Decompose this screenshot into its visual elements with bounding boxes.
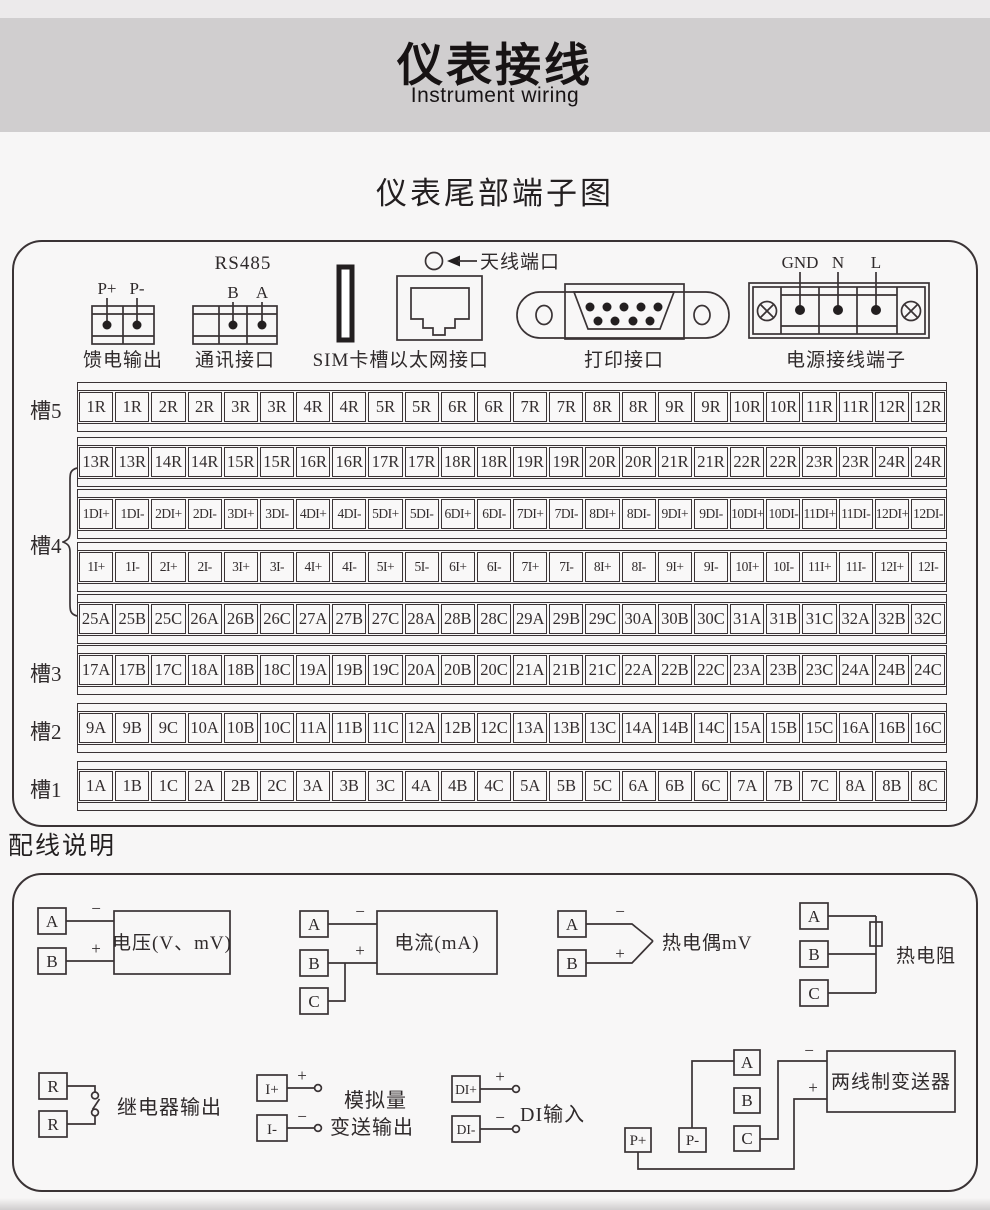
terminal-cell: 14R [151,447,185,477]
terminal-cell: 7R [549,392,583,422]
printer-port-label: 打印接口 [584,349,664,371]
terminal-cell: 13R [115,447,149,477]
terminal-cell: 5C [585,771,619,801]
feed-output-label: 馈电输出 [83,349,163,371]
terminal-cell: 21R [694,447,728,477]
terminal-cell: 12A [405,713,439,743]
terminal-cell: 17A [79,655,113,685]
terminal-cell: 10C [260,713,294,743]
terminal-cell: 18R [441,447,475,477]
terminal-cell: 21R [658,447,692,477]
terminal-cell: 21C [585,655,619,685]
terminal-cell: 12I+ [875,552,909,582]
terminal-cell: 8I+ [585,552,619,582]
svg-text:C: C [808,984,819,1003]
svg-text:−: − [804,1041,814,1060]
terminal-cell: 4I+ [296,552,330,582]
terminal-cell: 7I+ [513,552,547,582]
terminal-cell: 6DI- [477,499,511,529]
terminal-cell: 8DI+ [585,499,619,529]
terminal-cell: 29A [513,604,547,634]
terminal-diagram-heading: 仪表尾部端子图 [0,168,990,213]
terminal-cell: 7B [766,771,800,801]
terminal-cell: 26C [260,604,294,634]
terminal-cell: 10DI+ [730,499,764,529]
terminal-cell: 1B [115,771,149,801]
slot5-label: 槽5 [30,395,76,425]
terminal-cell: 15R [260,447,294,477]
terminal-cell: 8R [585,392,619,422]
two-wire-transmitter-wiring-diagram: A B C P+ P- − + 两线制变送器 [625,1041,955,1169]
terminal-cell: 28B [441,604,475,634]
feed-pin-p-plus: P+ [97,279,116,298]
terminal-cell: 11DI- [839,499,873,529]
terminal-cell: 19C [368,655,402,685]
terminal-cell: 22R [730,447,764,477]
terminal-cell: 11I- [839,552,873,582]
wiring-panel: A B − + 电压(V、mV) A B C − [12,873,978,1192]
terminal-cell: 25A [79,604,113,634]
terminal-cell: 25B [115,604,149,634]
terminal-cell: 6I- [477,552,511,582]
terminal-cell: 9R [658,392,692,422]
terminal-cell: 22C [694,655,728,685]
slot3-label: 槽3 [30,658,76,688]
feed-pin-p-minus: P- [129,279,144,298]
svg-text:+: + [615,944,625,963]
terminal-cell: 1R [115,392,149,422]
terminal-cell: 28A [405,604,439,634]
svg-text:+: + [495,1067,505,1086]
terminal-cell: 1I+ [79,552,113,582]
svg-text:DI-: DI- [457,1122,476,1137]
power-terminal-label: 电源接线端子 [786,349,906,371]
terminal-cell: 24C [911,655,945,685]
terminal-cell: 19R [513,447,547,477]
ethernet-port-label: 以太网接口 [389,349,489,371]
terminal-cell: 5DI- [405,499,439,529]
power-terminal-icon: GND N L 电源接线端子 [749,253,929,371]
terminal-cell: 8C [911,771,945,801]
terminal-strip-slot4-di: 1DI+1DI-2DI+2DI-3DI+3DI-4DI+4DI-5DI+5DI-… [77,489,947,539]
terminal-cell: 4R [296,392,330,422]
terminal-cell: 2I+ [151,552,185,582]
svg-text:A: A [808,907,821,926]
terminal-cell: 9I- [694,552,728,582]
terminal-cell: 15B [766,713,800,743]
terminal-cell: 15A [730,713,764,743]
terminal-cell: 12R [911,392,945,422]
terminal-cell: 4DI+ [296,499,330,529]
terminal-cell: 6A [622,771,656,801]
svg-text:I+: I+ [265,1082,278,1098]
terminal-cell: 15C [802,713,836,743]
terminal-cell: 6I+ [441,552,475,582]
terminal-panel: P+ P- 馈电输出 RS485 B A 通讯接口 [12,240,978,827]
power-pin-gnd: GND [782,253,819,272]
terminal-cell: 11B [332,713,366,743]
terminal-cell: 17R [368,447,402,477]
terminal-cell: 29C [585,604,619,634]
terminal-cell: 20R [585,447,619,477]
antenna-port-icon: 天线端口 [426,251,561,273]
terminal-cell: 3B [332,771,366,801]
svg-text:A: A [308,915,321,934]
svg-text:−: − [91,899,101,918]
svg-text:−: − [355,902,365,921]
svg-text:+: + [355,941,365,960]
svg-text:A: A [46,912,59,931]
svg-text:+: + [91,939,101,958]
terminal-cell: 3I+ [224,552,258,582]
terminal-cell: 17C [151,655,185,685]
terminal-cell: 1I- [115,552,149,582]
terminal-cell: 18B [224,655,258,685]
terminal-cell: 19A [296,655,330,685]
terminal-cell: 5I+ [368,552,402,582]
terminal-cell: 23B [766,655,800,685]
printer-port-icon: 打印接口 [517,284,729,371]
switch-lever-icon [93,1099,100,1110]
terminal-cell: 11R [839,392,873,422]
terminal-cell: 16R [296,447,330,477]
terminal-cell: 5I- [405,552,439,582]
terminal-cell: 2C [260,771,294,801]
rtd-wiring-diagram: A B C 热电阻 [800,903,956,1006]
terminal-cell: 3I- [260,552,294,582]
rear-connectors: P+ P- 馈电输出 RS485 B A 通讯接口 [14,242,976,374]
terminal-cell: 17B [115,655,149,685]
terminal-cell: 7I- [549,552,583,582]
svg-text:−: − [615,902,625,921]
terminal-cell: 11A [296,713,330,743]
terminal-cell: 6R [477,392,511,422]
terminal-cell: 21A [513,655,547,685]
terminal-cell: 6B [658,771,692,801]
terminal-cell: 7R [513,392,547,422]
thermocouple-label: 热电偶mV [662,932,753,954]
terminal-cell: 13B [549,713,583,743]
terminal-cell: 31B [766,604,800,634]
svg-text:R: R [47,1115,59,1134]
terminal-cell: 13R [79,447,113,477]
terminal-cell: 21B [549,655,583,685]
terminal-cell: 2B [224,771,258,801]
terminal-cell: 26A [188,604,222,634]
terminal-cell: 6R [441,392,475,422]
terminal-cell: 25C [151,604,185,634]
terminal-cell: 8I- [622,552,656,582]
terminal-cell: 11I+ [802,552,836,582]
terminal-cell: 2R [188,392,222,422]
terminal-cell: 10R [766,392,800,422]
relay-label: 继电器输出 [117,1096,222,1119]
comm-port-label: 通讯接口 [195,349,275,371]
svg-text:+: + [297,1066,307,1085]
terminal-cell: 20C [477,655,511,685]
terminal-cell: 16B [875,713,909,743]
antenna-port-label: 天线端口 [480,251,560,273]
bottom-strip [0,1198,990,1210]
di-input-wiring-diagram: DI+ DI- + − DI输入 [452,1067,585,1142]
terminal-cell: 32C [911,604,945,634]
page-title: 仪表接线 [397,42,593,88]
terminal-cell: 11DI+ [802,499,836,529]
terminal-cell: 24B [875,655,909,685]
terminal-cell: 24R [875,447,909,477]
terminal-cell: 18R [477,447,511,477]
terminal-cell: 30C [694,604,728,634]
terminal-cell: 12DI+ [875,499,909,529]
terminal-cell: 24A [839,655,873,685]
terminal-cell: 9C [151,713,185,743]
terminal-cell: 8DI- [622,499,656,529]
terminal-strip-slot3: 17A17B17C18A18B18C19A19B19C20A20B20C21A2… [77,645,947,695]
terminal-cell: 16R [332,447,366,477]
svg-text:−: − [297,1107,307,1126]
terminal-cell: 10DI- [766,499,800,529]
terminal-cell: 4B [441,771,475,801]
terminal-cell: 12DI- [911,499,945,529]
svg-text:I-: I- [267,1122,277,1138]
comm-pin-b: B [227,283,238,302]
page-subtitle: Instrument wiring [411,84,579,108]
terminal-cell: 6C [694,771,728,801]
terminal-cell: 16A [839,713,873,743]
terminal-cell: 1DI+ [79,499,113,529]
terminal-cell: 17R [405,447,439,477]
terminal-cell: 3DI+ [224,499,258,529]
slot1-label: 槽1 [30,774,76,804]
terminal-cell: 10A [188,713,222,743]
terminal-strip-slot4-abc: 25A25B25C26A26B26C27A27B27C28A28B28C29A2… [77,594,947,644]
terminal-cell: 2DI- [188,499,222,529]
terminal-cell: 23R [802,447,836,477]
terminal-cell: 1A [79,771,113,801]
instrument-wiring-page: 仪表接线 Instrument wiring 仪表尾部端子图 P+ P- 馈电输… [0,0,990,1210]
svg-text:+: + [808,1078,818,1097]
current-wiring-diagram: A B C − + 电流(mA) [300,902,497,1014]
terminal-cell: 3R [224,392,258,422]
terminal-cell: 12I- [911,552,945,582]
terminal-cell: 12R [875,392,909,422]
terminal-cell: 11R [802,392,836,422]
terminal-cell: 5R [405,392,439,422]
terminal-strip-slot5: 1R1R2R2R3R3R4R4R5R5R6R6R7R7R8R8R9R9R10R1… [77,382,947,432]
terminal-cell: 2A [188,771,222,801]
analog-output-wiring-diagram: I+ I- + − 模拟量 变送输出 [257,1066,414,1141]
terminal-cell: 16C [911,713,945,743]
terminal-cell: 27B [332,604,366,634]
terminal-cell: 14R [188,447,222,477]
sim-slot-icon: SIM卡槽 [313,267,390,371]
power-pin-n: N [832,253,844,272]
terminal-cell: 19R [549,447,583,477]
comm-connector-icon: RS485 B A 通讯接口 [193,253,277,371]
relay-wiring-diagram: R R 继电器输出 [39,1073,222,1137]
terminal-cell: 30A [622,604,656,634]
terminal-cell: 20A [405,655,439,685]
terminal-cell: 7DI+ [513,499,547,529]
terminal-cell: 2R [151,392,185,422]
terminal-cell: 14C [694,713,728,743]
terminal-cell: 2DI+ [151,499,185,529]
terminal-cell: 22A [622,655,656,685]
terminal-cell: 10B [224,713,258,743]
svg-text:B: B [46,952,57,971]
terminal-cell: 23R [839,447,873,477]
terminal-cell: 6DI+ [441,499,475,529]
terminal-cell: 3DI- [260,499,294,529]
feed-output-connector-icon: P+ P- 馈电输出 [83,279,163,371]
terminal-cell: 8B [875,771,909,801]
terminal-cell: 28C [477,604,511,634]
terminal-cell: 9R [694,392,728,422]
terminal-cell: 12C [477,713,511,743]
terminal-cell: 9A [79,713,113,743]
terminal-cell: 14B [658,713,692,743]
svg-text:P-: P- [686,1133,699,1149]
terminal-cell: 20R [622,447,656,477]
terminal-cell: 13C [585,713,619,743]
terminal-cell: 19B [332,655,366,685]
analog-label-line2: 变送输出 [330,1116,414,1139]
di-input-label: DI输入 [520,1103,585,1126]
terminal-cell: 4I- [332,552,366,582]
terminal-cell: 23A [730,655,764,685]
terminal-cell: 7C [802,771,836,801]
svg-text:C: C [308,992,319,1011]
terminal-cell: 23C [802,655,836,685]
svg-text:R: R [47,1077,59,1096]
terminal-cell: 31A [730,604,764,634]
svg-text:B: B [566,954,577,973]
terminal-cell: 24R [911,447,945,477]
svg-text:P+: P+ [630,1133,647,1149]
terminal-cell: 3R [260,392,294,422]
terminal-cell: 10I+ [730,552,764,582]
terminal-cell: 5DI+ [368,499,402,529]
terminal-cell: 29B [549,604,583,634]
svg-text:B: B [808,945,819,964]
terminal-cell: 27C [368,604,402,634]
terminal-cell: 5A [513,771,547,801]
sim-slot-label: SIM卡槽 [313,349,390,371]
terminal-cell: 11C [368,713,402,743]
slot2-label: 槽2 [30,716,76,746]
terminal-cell: 2I- [188,552,222,582]
wiring-diagrams: A B − + 电压(V、mV) A B C − [14,875,976,1186]
wiring-section-heading: 配线说明 [8,826,116,862]
terminal-cell: 8R [622,392,656,422]
current-label: 电流(mA) [394,932,479,954]
terminal-cell: 32B [875,604,909,634]
terminal-cell: 5B [549,771,583,801]
voltage-label: 电压(V、mV) [112,932,232,954]
terminal-cell: 18C [260,655,294,685]
svg-text:A: A [741,1053,754,1072]
terminal-cell: 3A [296,771,330,801]
terminal-cell: 9B [115,713,149,743]
terminal-strip-slot4-i: 1I+1I-2I+2I-3I+3I-4I+4I-5I+5I-6I+6I-7I+7… [77,542,947,592]
svg-text:−: − [495,1108,505,1127]
terminal-strip-slot2: 9A9B9C10A10B10C11A11B11C12A12B12C13A13B1… [77,703,947,753]
terminal-cell: 7DI- [549,499,583,529]
terminal-cell: 22R [766,447,800,477]
terminal-cell: 4DI- [332,499,366,529]
svg-text:B: B [741,1091,752,1110]
svg-text:C: C [741,1129,752,1148]
terminal-cell: 5R [368,392,402,422]
terminal-cell: 9DI+ [658,499,692,529]
transmitter-label: 两线制变送器 [831,1071,951,1093]
terminal-cell: 7A [730,771,764,801]
terminal-cell: 10R [730,392,764,422]
rs485-label: RS485 [215,253,272,274]
header-band: 仪表接线 Instrument wiring [0,18,990,132]
terminal-cell: 4R [332,392,366,422]
terminal-cell: 15R [224,447,258,477]
terminal-cell: 9I+ [658,552,692,582]
rtd-label: 热电阻 [896,945,956,967]
terminal-cell: 20B [441,655,475,685]
svg-text:B: B [308,954,319,973]
terminal-cell: 3C [368,771,402,801]
terminal-strip-slot1: 1A1B1C2A2B2C3A3B3C4A4B4C5A5B5C6A6B6C7A7B… [77,761,947,811]
terminal-cell: 26B [224,604,258,634]
terminal-cell: 32A [839,604,873,634]
terminal-cell: 14A [622,713,656,743]
top-strip [0,0,990,18]
terminal-cell: 30B [658,604,692,634]
terminal-cell: 4A [405,771,439,801]
voltage-wiring-diagram: A B − + 电压(V、mV) [38,899,232,974]
terminal-cell: 27A [296,604,330,634]
svg-text:A: A [566,915,579,934]
comm-pin-a: A [256,283,269,302]
terminal-cell: 1DI- [115,499,149,529]
terminal-cell: 9DI- [694,499,728,529]
svg-text:DI+: DI+ [455,1082,477,1097]
terminal-cell: 22B [658,655,692,685]
terminal-cell: 12B [441,713,475,743]
terminal-cell: 1R [79,392,113,422]
ethernet-port-icon: 以太网接口 [389,276,489,371]
terminal-cell: 8A [839,771,873,801]
terminal-strip-slot4-relay: 13R13R14R14R15R15R16R16R17R17R18R18R19R1… [77,437,947,487]
terminal-cell: 10I- [766,552,800,582]
terminal-cell: 1C [151,771,185,801]
terminal-cell: 31C [802,604,836,634]
analog-label-line1: 模拟量 [344,1089,407,1112]
power-pin-l: L [871,253,881,272]
thermocouple-wiring-diagram: A B − + 热电偶mV [558,902,753,976]
terminal-cell: 18A [188,655,222,685]
terminal-cell: 13A [513,713,547,743]
terminal-cell: 4C [477,771,511,801]
